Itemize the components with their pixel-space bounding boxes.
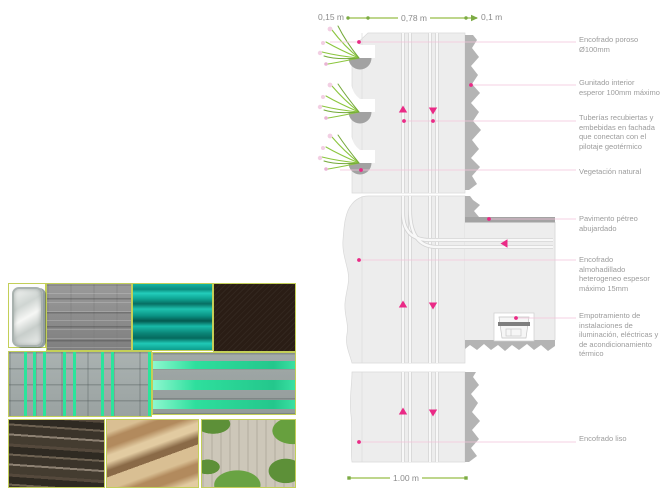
photo-concrete-horizontal-glass-stripes (152, 352, 296, 415)
annotation-encofrado-poroso: Encofrado poroso Ø100mm (579, 35, 661, 54)
photo-padded-formwork (106, 419, 199, 488)
top-wall-panel (318, 26, 481, 193)
shotcrete-band-middle-top (465, 196, 480, 217)
dimension-label-100: 1.00 m (390, 473, 422, 483)
recessed-light-fixture (494, 313, 534, 341)
dimension-label-015: 0,15 m (318, 12, 344, 22)
glass-block-image (12, 287, 43, 347)
photo-soil-strata (8, 419, 105, 488)
middle-slab-panel (343, 196, 555, 363)
material-collage (8, 283, 296, 488)
photo-board-formed-concrete (46, 283, 132, 351)
shotcrete-band-bottom (465, 372, 480, 462)
shotcrete-band-ceiling (465, 340, 555, 351)
bottom-wall-panel (350, 372, 480, 462)
photo-glass-block (8, 283, 46, 348)
annotation-vegetacion-natural: Vegetación natural (579, 167, 661, 177)
dimension-label-01: 0,1 m (481, 12, 502, 22)
annotation-empotramiento: Empotramiento de instalaciones de ilumin… (579, 311, 661, 359)
photo-moss-on-concrete (201, 419, 296, 488)
annotation-gunitado-interior: Gunitado interior esperor 100mm máximo (579, 78, 661, 97)
photo-dark-aggregate (213, 283, 296, 352)
dimension-label-078: 0,78 m (398, 13, 430, 23)
photo-concrete-vertical-glass-stripes (8, 351, 152, 417)
annotation-encofrado-almohadillado: Encofrado almohadillado heterogeneo espe… (579, 255, 661, 293)
shotcrete-band-top (465, 35, 481, 190)
annotation-encofrado-liso: Encofrado liso (579, 434, 661, 444)
page: 0,15 m 0,78 m 0,1 m 1.00 m Encofrado por… (0, 0, 667, 500)
annotation-tuberias: Tuberías recubiertas y embebidas en fach… (579, 113, 661, 151)
stone-paving-band (465, 217, 555, 223)
photo-teal-glass (132, 283, 213, 351)
annotation-pavimento-petreo: Pavimento pétreo abujardado (579, 214, 661, 233)
